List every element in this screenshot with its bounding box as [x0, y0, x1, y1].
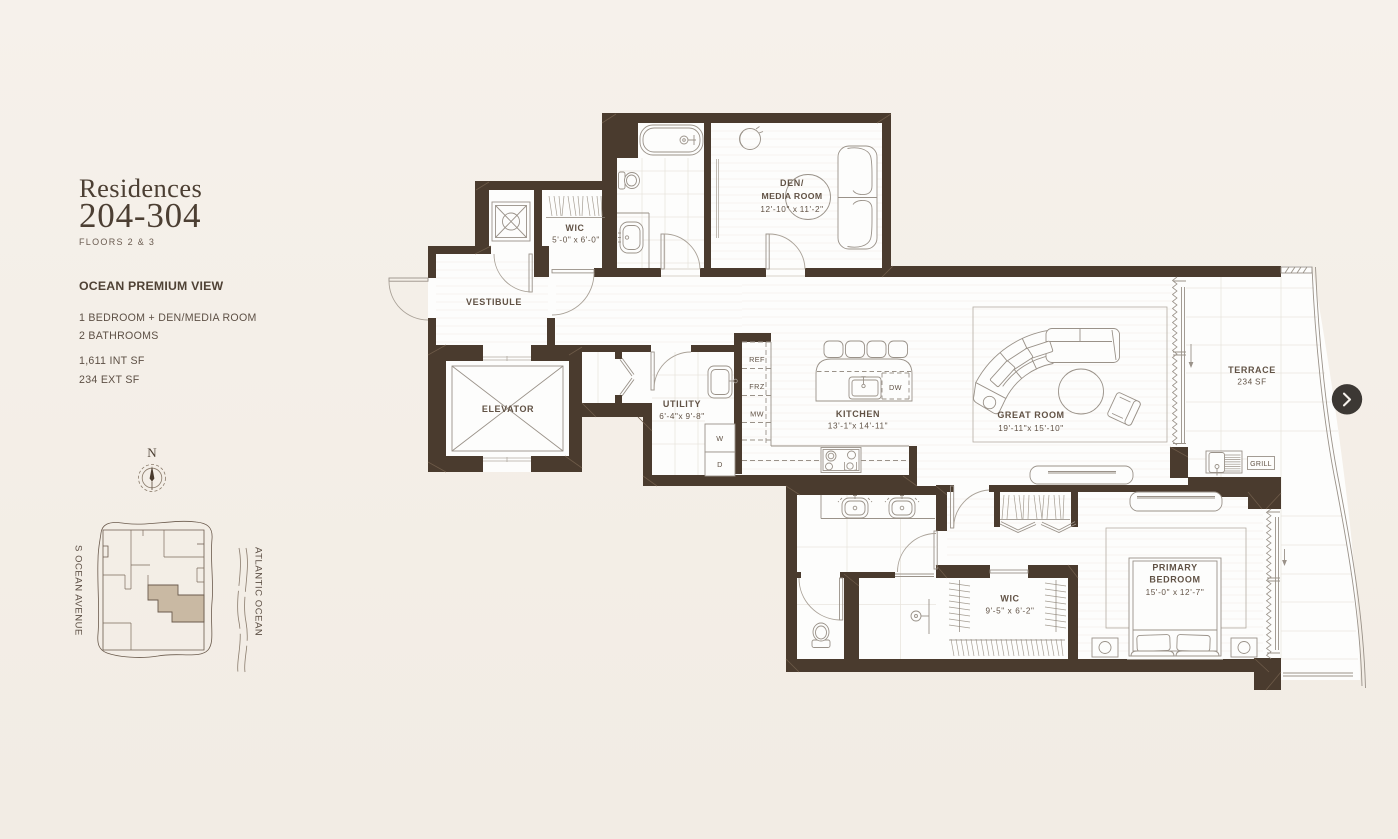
svg-text:REF: REF: [749, 355, 765, 364]
svg-text:PRIMARY: PRIMARY: [1152, 563, 1197, 573]
svg-text:19'-11"x 15'-10": 19'-11"x 15'-10": [998, 424, 1064, 433]
svg-text:BEDROOM: BEDROOM: [1149, 575, 1200, 585]
svg-text:D: D: [717, 460, 723, 469]
svg-text:WIC: WIC: [566, 223, 585, 233]
svg-text:6'-4"x 9'-8": 6'-4"x 9'-8": [659, 412, 705, 421]
svg-text:GREAT ROOM: GREAT ROOM: [997, 410, 1064, 420]
svg-text:12'-10" x 11'-2": 12'-10" x 11'-2": [760, 205, 823, 214]
svg-text:VESTIBULE: VESTIBULE: [466, 297, 522, 307]
svg-text:TERRACE: TERRACE: [1228, 365, 1276, 375]
svg-text:5'-0" x 6'-0": 5'-0" x 6'-0": [552, 236, 600, 245]
svg-text:13'-1"x 14'-11": 13'-1"x 14'-11": [828, 422, 888, 431]
svg-text:DEN/: DEN/: [780, 178, 804, 188]
svg-text:WIC: WIC: [1000, 594, 1019, 604]
svg-text:MW: MW: [750, 410, 764, 419]
svg-text:234 SF: 234 SF: [1237, 378, 1266, 387]
svg-text:MEDIA ROOM: MEDIA ROOM: [761, 191, 822, 201]
svg-text:9'-5" x 6'-2": 9'-5" x 6'-2": [985, 607, 1034, 616]
svg-text:KITCHEN: KITCHEN: [836, 409, 880, 419]
svg-text:W: W: [716, 434, 724, 443]
svg-text:15'-0" x 12'-7": 15'-0" x 12'-7": [1146, 588, 1205, 597]
svg-text:FRZ: FRZ: [749, 382, 765, 391]
svg-text:ATLANTIC OCEAN: ATLANTIC OCEAN: [253, 547, 264, 636]
svg-text:N: N: [147, 445, 157, 460]
svg-text:ELEVATOR: ELEVATOR: [482, 404, 534, 414]
svg-text:GRILL: GRILL: [1250, 461, 1272, 468]
svg-text:S OCEAN AVENUE: S OCEAN AVENUE: [73, 545, 84, 636]
svg-text:UTILITY: UTILITY: [663, 399, 701, 409]
svg-text:DW: DW: [889, 383, 902, 392]
